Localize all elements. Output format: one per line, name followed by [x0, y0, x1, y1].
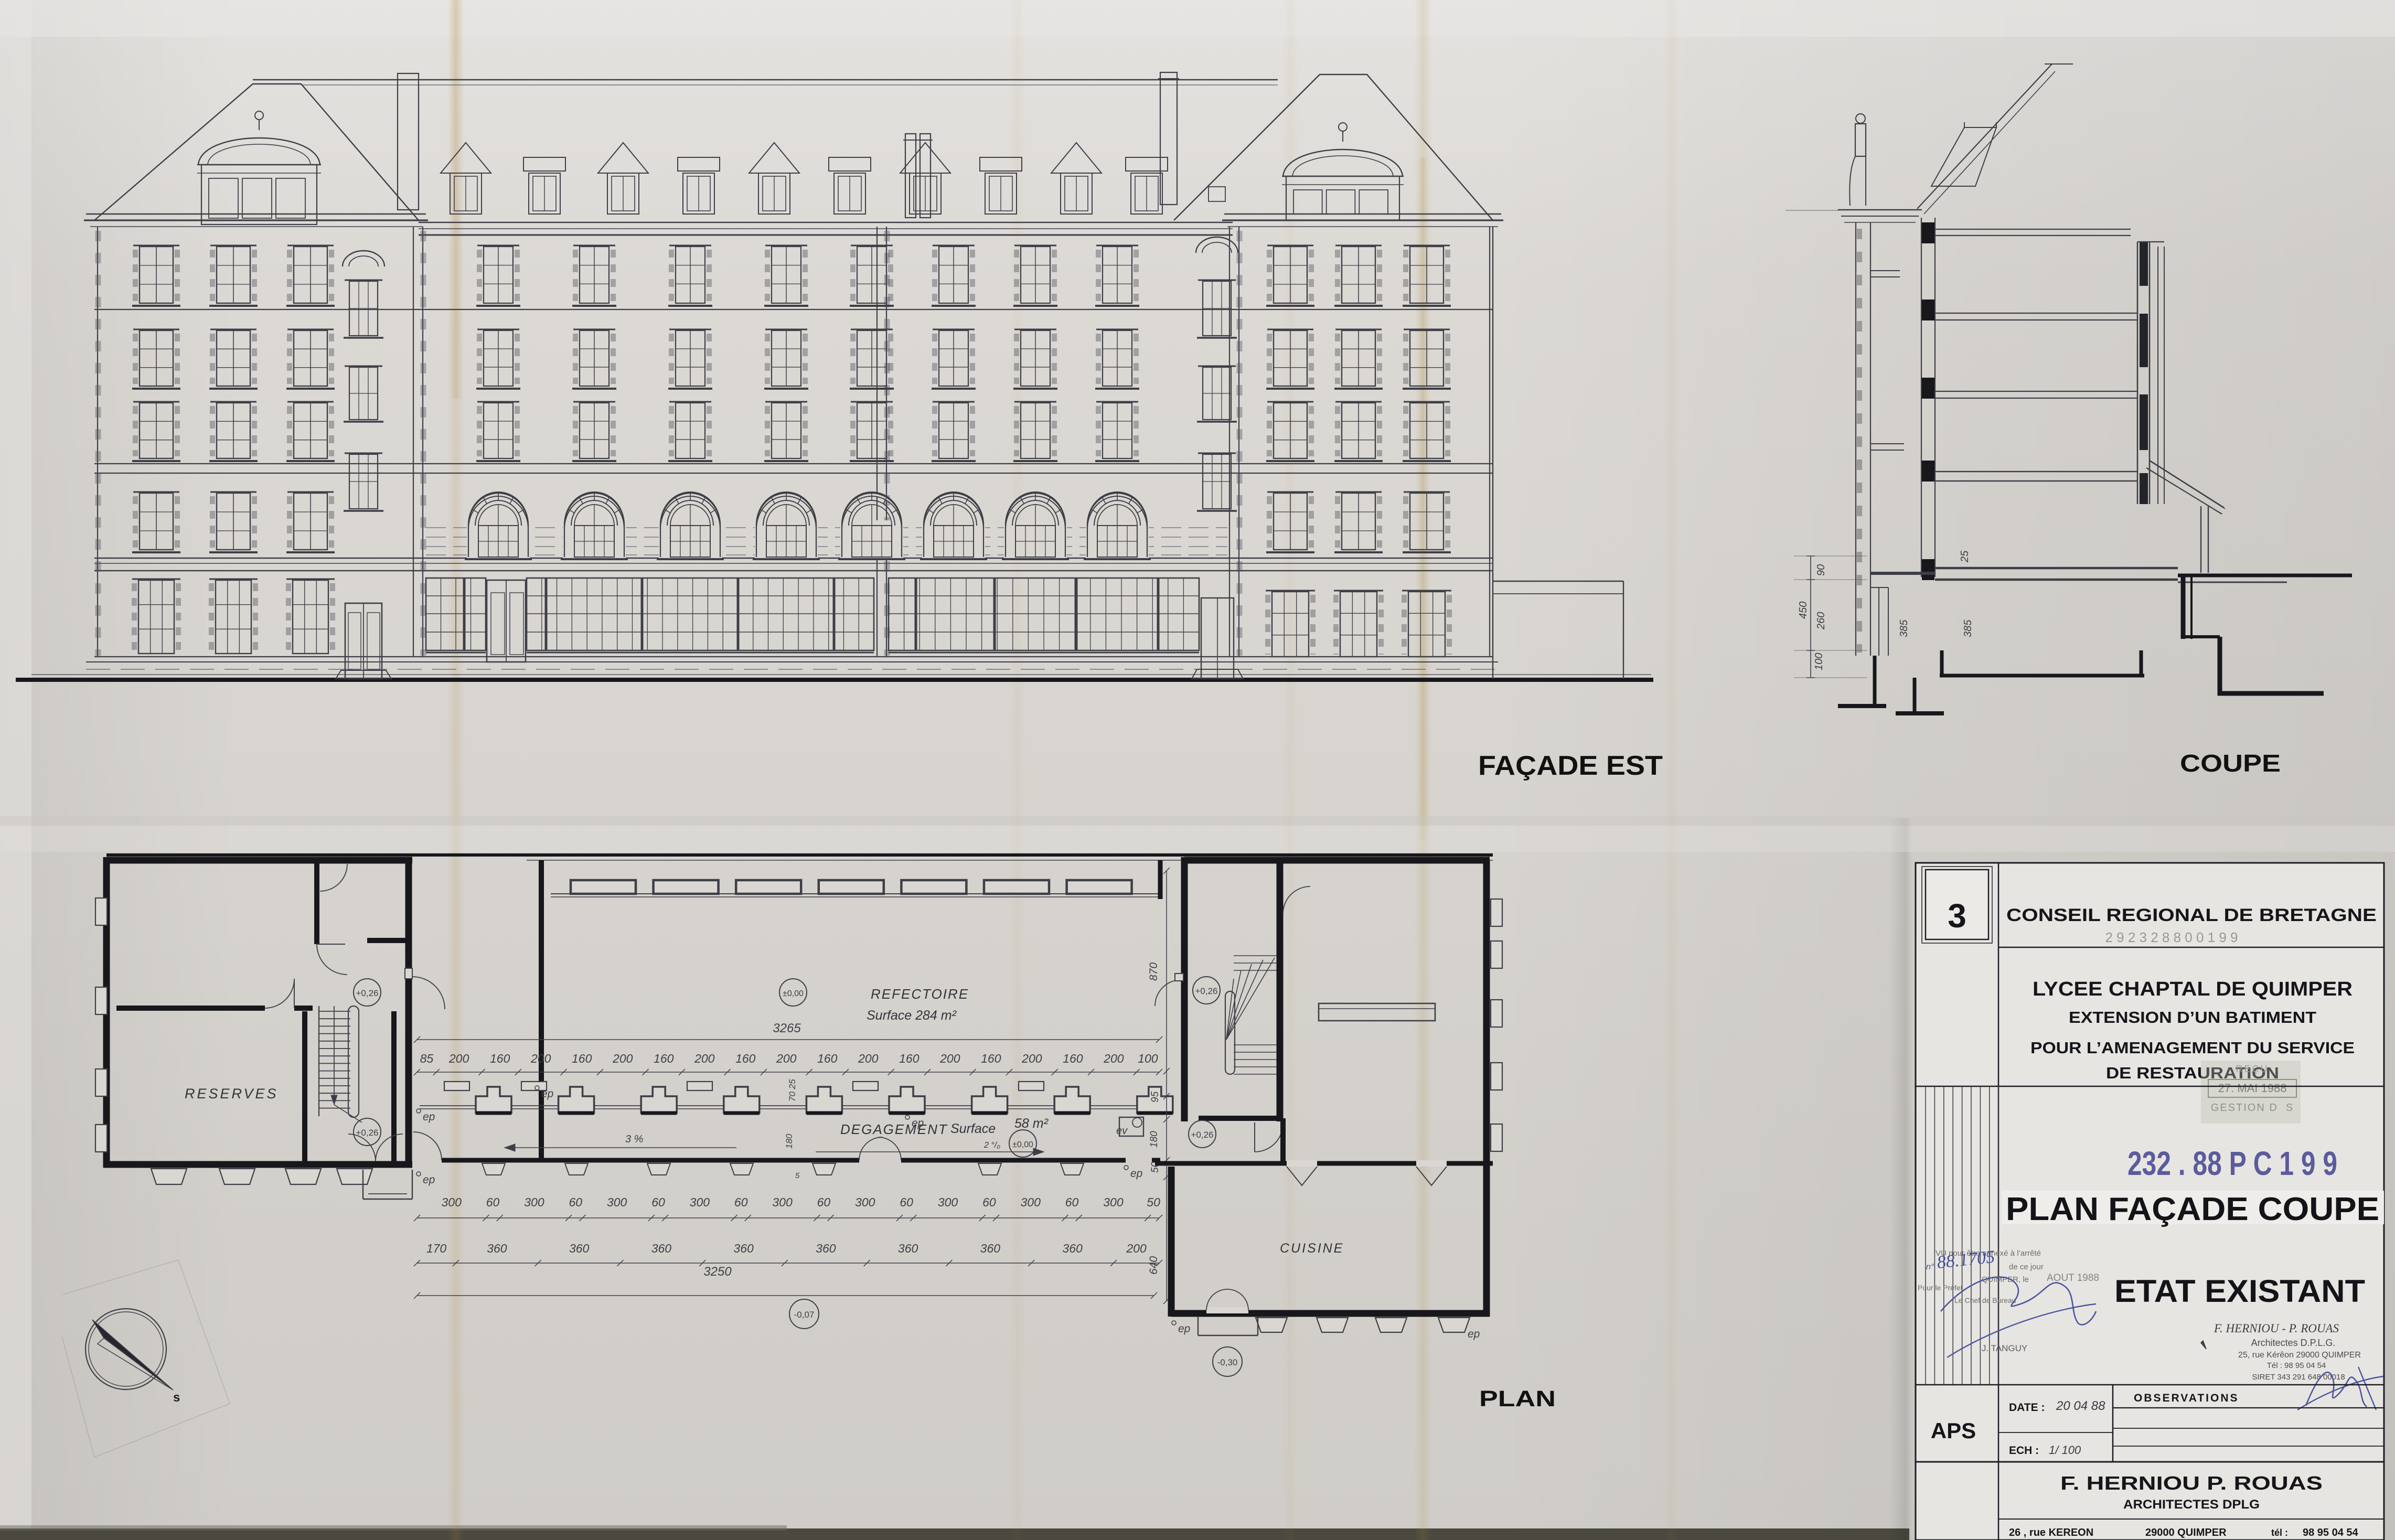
svg-text:ETAT EXISTANT: ETAT EXISTANT — [2114, 1274, 2365, 1309]
svg-text:PLAN: PLAN — [1479, 1386, 1556, 1411]
svg-text:ep: ep — [541, 1088, 553, 1100]
svg-text:REFECTOIRE: REFECTOIRE — [871, 986, 969, 1002]
svg-text:170: 170 — [426, 1242, 447, 1255]
svg-text:300: 300 — [690, 1195, 710, 1209]
svg-text:360: 360 — [816, 1242, 836, 1255]
svg-text:90: 90 — [1815, 564, 1827, 576]
svg-text:160: 160 — [654, 1052, 674, 1065]
svg-text:200: 200 — [530, 1052, 551, 1065]
svg-text:160: 160 — [899, 1052, 919, 1065]
svg-text:ECH :: ECH : — [2009, 1445, 2039, 1457]
svg-text:85: 85 — [420, 1052, 434, 1065]
svg-text:QUIMPER, le: QUIMPER, le — [1982, 1275, 2029, 1284]
svg-text:300: 300 — [607, 1195, 627, 1209]
svg-text:tél :: tél : — [2271, 1527, 2288, 1538]
svg-text:360: 360 — [487, 1242, 507, 1255]
svg-text:200: 200 — [858, 1052, 879, 1065]
svg-text:100: 100 — [1138, 1052, 1158, 1065]
svg-text:LYCEE CHAPTAL DE QUIMPER: LYCEE CHAPTAL DE QUIMPER — [2033, 978, 2353, 1000]
svg-text:640: 640 — [1148, 1256, 1160, 1275]
svg-text:260: 260 — [1815, 612, 1827, 630]
svg-text:360: 360 — [898, 1242, 918, 1255]
svg-text:ep: ep — [1178, 1323, 1190, 1335]
svg-text:60: 60 — [734, 1195, 748, 1209]
svg-text:J. TANGUY: J. TANGUY — [1982, 1343, 2027, 1353]
svg-text:COUPE: COUPE — [2180, 750, 2281, 777]
svg-text:60: 60 — [486, 1195, 500, 1209]
svg-text:100: 100 — [1813, 653, 1825, 670]
svg-text:450: 450 — [1798, 602, 1809, 619]
svg-text:-0,07: -0,07 — [794, 1310, 815, 1320]
svg-text:POUR L’AMENAGEMENT DU SERVI: POUR L’AMENAGEMENT DU SERVICE — [2030, 1039, 2355, 1057]
svg-text:200: 200 — [1021, 1052, 1042, 1065]
svg-text:REÇU: REÇU — [2236, 1064, 2269, 1074]
svg-text:5: 5 — [795, 1171, 800, 1180]
svg-text:2 9 2 3 2 8 8 0 0 1 9 9: 2 9 2 3 2 8 8 0 0 1 9 9 — [2105, 929, 2238, 945]
svg-text:385: 385 — [1898, 619, 1910, 637]
svg-text:300: 300 — [442, 1195, 462, 1209]
svg-text:+0,26: +0,26 — [1195, 986, 1217, 996]
svg-text:200: 200 — [776, 1052, 797, 1065]
svg-text:70 25: 70 25 — [787, 1079, 797, 1101]
svg-text:AOUT 1988: AOUT 1988 — [2047, 1272, 2099, 1284]
svg-text:60: 60 — [1065, 1195, 1079, 1209]
svg-text:FAÇADE EST: FAÇADE EST — [1478, 751, 1663, 781]
svg-text:60: 60 — [900, 1195, 913, 1209]
svg-text:200: 200 — [939, 1052, 960, 1065]
svg-text:2 °/₀: 2 °/₀ — [983, 1141, 1000, 1150]
svg-text:300: 300 — [772, 1195, 793, 1209]
svg-text:F. HERNIOU - P. ROUAS: F. HERNIOU - P. ROUAS — [2214, 1322, 2339, 1335]
svg-text:870: 870 — [1148, 962, 1160, 981]
svg-text:160: 160 — [817, 1052, 838, 1065]
svg-text:ep: ep — [423, 1111, 435, 1123]
svg-text:20 04 88: 20 04 88 — [2056, 1399, 2105, 1413]
svg-text:Surface 284 m²: Surface 284 m² — [867, 1008, 957, 1023]
svg-text:3250: 3250 — [703, 1265, 732, 1279]
svg-text:60: 60 — [817, 1195, 831, 1209]
svg-text:360: 360 — [651, 1242, 672, 1255]
svg-text:+0,26: +0,26 — [356, 988, 378, 998]
svg-text:200: 200 — [612, 1052, 633, 1065]
svg-text:de ce jour: de ce jour — [2009, 1263, 2044, 1271]
svg-text:±0,00: ±0,00 — [1012, 1140, 1033, 1149]
svg-text:Le Chef de Bureau: Le Chef de Bureau — [1954, 1296, 2016, 1304]
svg-text:EXTENSION D’UN BATIMENT: EXTENSION D’UN BATIMENT — [2069, 1008, 2316, 1026]
svg-text:26 , rue KEREON: 26 , rue KEREON — [2009, 1527, 2093, 1538]
svg-text:160: 160 — [981, 1052, 1001, 1065]
svg-text:360: 360 — [569, 1242, 590, 1255]
svg-text:CUISINE: CUISINE — [1280, 1241, 1344, 1256]
svg-text:ep: ep — [1468, 1328, 1480, 1340]
svg-text:3: 3 — [1948, 897, 1966, 935]
svg-text:DATE :: DATE : — [2009, 1402, 2045, 1414]
svg-text:-0,30: -0,30 — [1217, 1357, 1238, 1367]
svg-text:25, rue Kérêon 29000 QUIMPER: 25, rue Kérêon 29000 QUIMPER — [2238, 1351, 2361, 1360]
svg-text:3 %: 3 % — [625, 1133, 643, 1145]
svg-text:60: 60 — [651, 1195, 665, 1209]
svg-text:180: 180 — [1149, 1131, 1160, 1148]
svg-text:360: 360 — [733, 1242, 754, 1255]
svg-text:232 . 88 P C 1 9 9: 232 . 88 P C 1 9 9 — [2127, 1145, 2337, 1182]
svg-text:160: 160 — [735, 1052, 756, 1065]
svg-text:s: s — [173, 1391, 180, 1405]
svg-text:DEGAGEMENT: DEGAGEMENT — [840, 1121, 948, 1137]
svg-text:ep: ep — [1130, 1168, 1142, 1180]
svg-text:160: 160 — [490, 1052, 510, 1065]
svg-text:160: 160 — [1063, 1052, 1083, 1065]
svg-text:GESTION D S: GESTION D S — [2211, 1102, 2294, 1114]
svg-text:300: 300 — [1103, 1195, 1124, 1209]
svg-text:PLAN FAÇADE COUPE: PLAN FAÇADE COUPE — [2006, 1191, 2379, 1227]
svg-text:n°: n° — [1926, 1263, 1934, 1271]
svg-text:ARCHITECTES DPLG: ARCHITECTES DPLG — [2123, 1498, 2260, 1512]
svg-text:300: 300 — [524, 1195, 544, 1209]
svg-text:25: 25 — [1959, 550, 1971, 563]
svg-text:200: 200 — [1126, 1242, 1147, 1255]
svg-text:Surface: Surface — [950, 1121, 996, 1136]
svg-text:360: 360 — [980, 1242, 1001, 1255]
svg-text:Tél : 98 95 04 54: Tél : 98 95 04 54 — [2267, 1361, 2326, 1370]
svg-text:50: 50 — [1147, 1195, 1160, 1209]
svg-text:1/ 100: 1/ 100 — [2049, 1443, 2081, 1457]
svg-text:29000 QUIMPER: 29000 QUIMPER — [2145, 1527, 2227, 1538]
svg-text:Pour le Préfet,: Pour le Préfet, — [1918, 1284, 1965, 1292]
svg-text:60: 60 — [982, 1195, 996, 1209]
svg-text:+0,26: +0,26 — [1191, 1130, 1213, 1140]
svg-text:180: 180 — [784, 1133, 794, 1149]
svg-text:27. MAI 1988: 27. MAI 1988 — [2218, 1082, 2287, 1095]
svg-text:Architectes D.P.L.G.: Architectes D.P.L.G. — [2251, 1338, 2336, 1348]
svg-text:300: 300 — [855, 1195, 875, 1209]
svg-text:60: 60 — [569, 1195, 582, 1209]
svg-text:300: 300 — [938, 1195, 958, 1209]
svg-text:OBSERVATIONS: OBSERVATIONS — [2134, 1392, 2239, 1404]
svg-text:58 m²: 58 m² — [1014, 1116, 1049, 1131]
svg-text:3265: 3265 — [773, 1021, 801, 1035]
svg-text:±0,00: ±0,00 — [783, 989, 804, 998]
svg-text:ep: ep — [423, 1174, 435, 1186]
svg-text:385: 385 — [1962, 619, 1974, 637]
svg-text:200: 200 — [694, 1052, 715, 1065]
svg-text:APS: APS — [1931, 1418, 1976, 1443]
svg-text:95: 95 — [1150, 1091, 1161, 1103]
svg-text:RESERVES: RESERVES — [185, 1086, 279, 1101]
svg-text:200: 200 — [448, 1052, 469, 1065]
svg-text:F. HERNIOU P. ROUAS: F. HERNIOU P. ROUAS — [2060, 1472, 2323, 1494]
svg-text:ev: ev — [1116, 1125, 1128, 1137]
svg-text:200: 200 — [1103, 1052, 1124, 1065]
svg-text:160: 160 — [572, 1052, 592, 1065]
svg-text:98 95 04 54: 98 95 04 54 — [2303, 1527, 2359, 1538]
svg-text:300: 300 — [1021, 1195, 1041, 1209]
svg-text:360: 360 — [1062, 1242, 1083, 1255]
svg-text:CONSEIL REGIONAL DE BRETAGN: CONSEIL REGIONAL DE BRETAGNE — [2006, 905, 2377, 925]
